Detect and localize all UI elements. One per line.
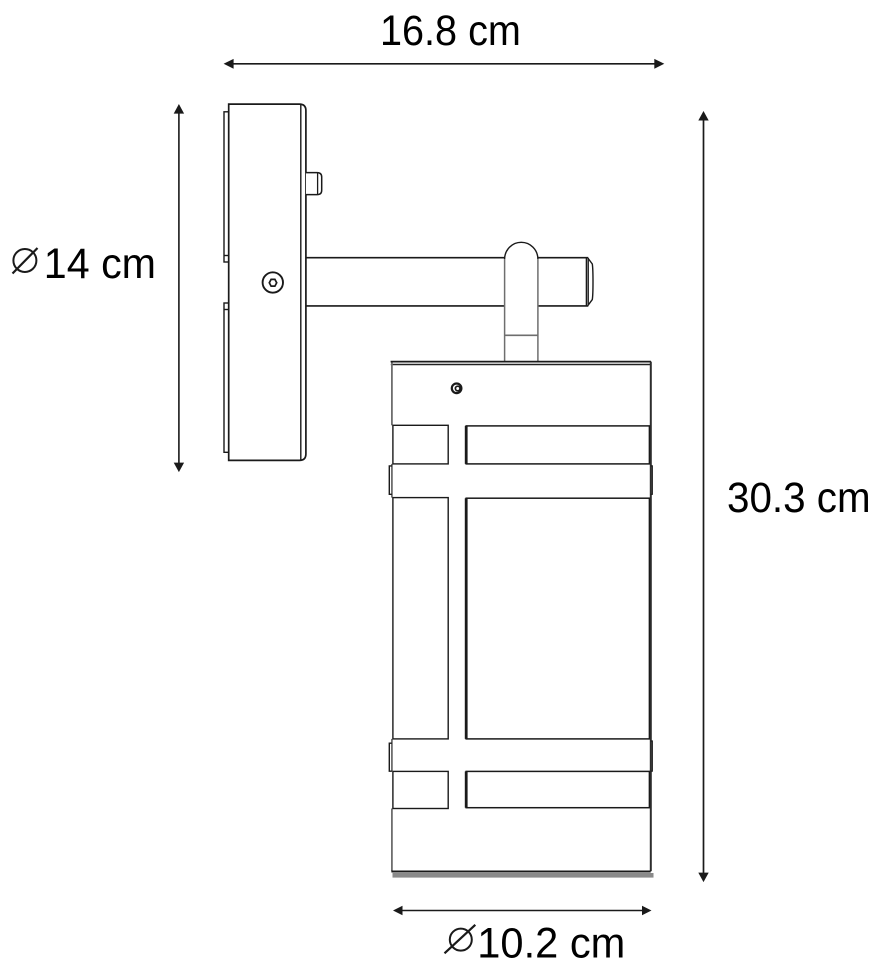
svg-text:10.2 cm: 10.2 cm	[477, 919, 625, 967]
svg-text:16.8 cm: 16.8 cm	[380, 7, 521, 55]
svg-text:30.3 cm: 30.3 cm	[727, 474, 871, 522]
svg-text:14 cm: 14 cm	[44, 240, 156, 288]
